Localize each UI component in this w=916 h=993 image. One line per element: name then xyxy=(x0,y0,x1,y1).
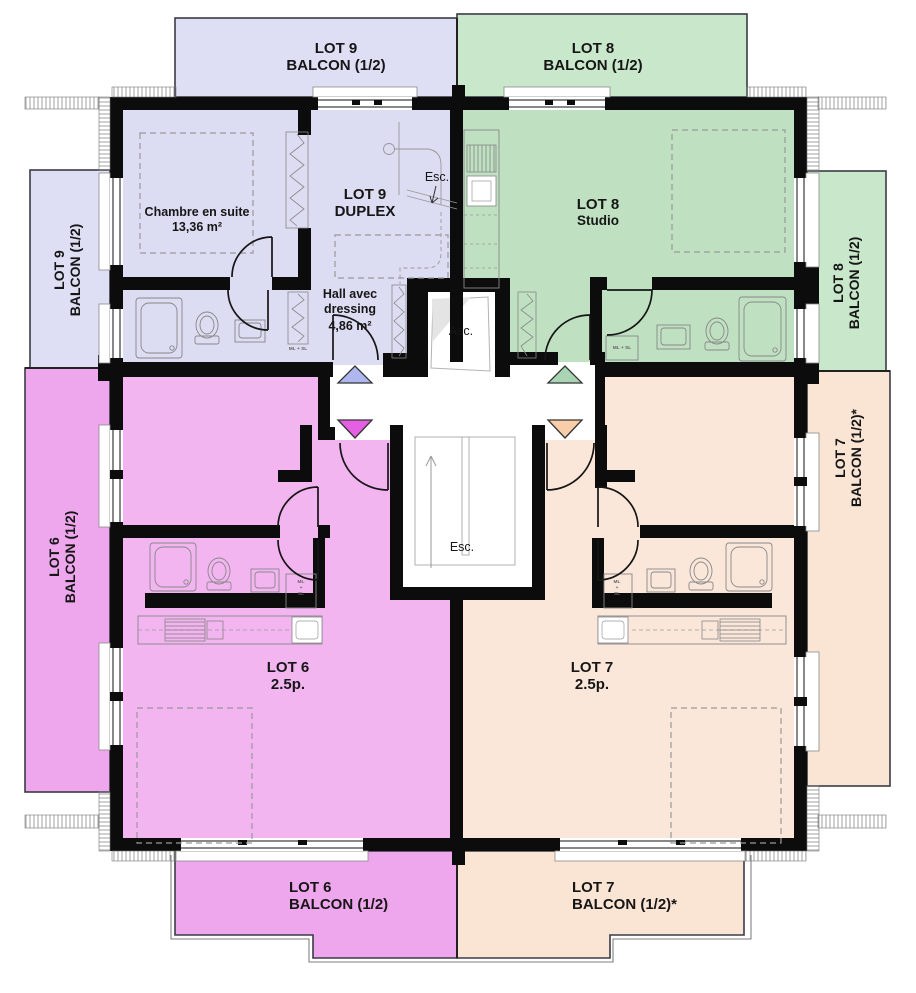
chambre-name: Chambre en suite xyxy=(117,205,277,220)
unit-label-lot7: LOT 7 2.5p. xyxy=(542,659,642,694)
balcony-right-upper-text: BALCON (1/2) xyxy=(846,237,862,330)
lot8-stove xyxy=(467,145,496,172)
lot8-name: LOT 8 xyxy=(533,196,663,213)
balcony-right-upper-lot: LOT 8 xyxy=(830,263,846,303)
lot6-closet-line3: SL xyxy=(288,592,314,598)
stair-wall-right xyxy=(532,425,545,600)
unit-label-lot8: LOT 8 Studio xyxy=(533,196,663,229)
balcony-top-right-text: BALCON (1/2) xyxy=(493,57,693,74)
balcony-top-right-lot: LOT 8 xyxy=(493,40,693,57)
elevator-label: Asc. xyxy=(436,324,486,339)
balcony-label-left-lower: LOT 6 BALCON (1/2) xyxy=(22,457,102,657)
hall-name: Hall avec dressing xyxy=(310,287,390,316)
lot6-stove xyxy=(165,619,205,641)
balcony-label-top-right: LOT 8 BALCON (1/2) xyxy=(493,40,693,75)
lot8-closet-label: ML + SL xyxy=(608,346,636,352)
stair-wall-bottom xyxy=(390,587,545,600)
balcony-top-left-lot: LOT 9 xyxy=(236,40,436,57)
balcony-label-left-upper: LOT 9 BALCON (1/2) xyxy=(27,170,107,370)
lot9-type: DUPLEX xyxy=(300,203,430,220)
hall-area: 4,86 m² xyxy=(310,319,390,334)
balcony-left-lower-lot: LOT 6 xyxy=(46,537,62,577)
stair-wall-left xyxy=(390,425,403,600)
lot9-closet-label: ML + SL xyxy=(286,347,310,353)
room-label-hall: Hall avec dressing 4,86 m² xyxy=(310,287,390,334)
lot7-stove xyxy=(720,619,760,641)
balcony-right-lower-text: BALCON (1/2)* xyxy=(848,409,864,507)
balcony-bottom-right-text: BALCON (1/2)* xyxy=(572,896,772,913)
balcony-label-right-lower: LOT 7 BALCON (1/2)* xyxy=(808,358,888,558)
balcony-left-lower-text: BALCON (1/2) xyxy=(62,511,78,604)
lot9-name: LOT 9 xyxy=(300,186,430,203)
lot7-type: 2.5p. xyxy=(542,676,642,693)
balcony-left-upper-text: BALCON (1/2) xyxy=(67,224,83,317)
balcony-right-lower-lot: LOT 7 xyxy=(832,438,848,478)
duplex-stairs-label: Esc. xyxy=(415,170,459,185)
balcony-bottom-left-lot: LOT 6 xyxy=(289,879,489,896)
unit-label-lot6: LOT 6 2.5p. xyxy=(238,659,338,694)
balcony-left-upper-lot: LOT 9 xyxy=(51,250,67,290)
lot6-type: 2.5p. xyxy=(238,676,338,693)
balcony-bottom-left-text: BALCON (1/2) xyxy=(289,896,489,913)
lot7-closet-line3: SL xyxy=(604,592,630,598)
balcony-label-bottom-right: LOT 7 BALCON (1/2)* xyxy=(572,879,772,914)
floor-plan-drawing xyxy=(0,0,916,993)
balcony-label-top-left: LOT 9 BALCON (1/2) xyxy=(236,40,436,75)
stairs-label: Esc. xyxy=(437,540,487,555)
balcony-top-left-text: BALCON (1/2) xyxy=(236,57,436,74)
lot8-sink xyxy=(467,176,496,206)
lot8-type: Studio xyxy=(533,213,663,229)
lot7-name: LOT 7 xyxy=(542,659,642,676)
lot6-closet-label: ML + SL xyxy=(288,580,314,598)
stair-rail xyxy=(462,437,469,555)
floor-plan: LOT 9 BALCON (1/2) LOT 8 BALCON (1/2) LO… xyxy=(0,0,916,993)
balcony-bottom-right-lot: LOT 7 xyxy=(572,879,772,896)
balcony-label-bottom-left: LOT 6 BALCON (1/2) xyxy=(289,879,489,914)
balcony-label-right-upper: LOT 8 BALCON (1/2) xyxy=(806,183,886,383)
room-label-chambre: Chambre en suite 13,36 m² xyxy=(117,205,277,234)
lot7-closet-label: ML + SL xyxy=(604,580,630,598)
unit-label-lot9: LOT 9 DUPLEX xyxy=(300,186,430,221)
lot6-name: LOT 6 xyxy=(238,659,338,676)
chambre-area: 13,36 m² xyxy=(117,220,277,235)
